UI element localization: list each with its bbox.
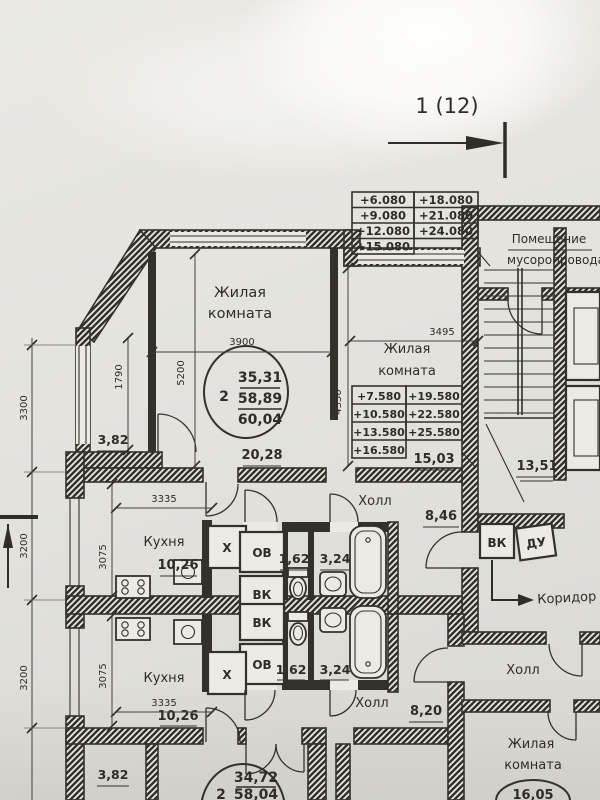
living1-name-line2: комната bbox=[208, 306, 272, 322]
living-right-name-line1: Жилая bbox=[508, 737, 555, 752]
dim-3335-top: 3335 bbox=[151, 494, 176, 505]
toilet-bottom bbox=[288, 612, 308, 645]
washbasin-top bbox=[320, 572, 346, 596]
living2-name-line1: Жилая bbox=[384, 342, 431, 357]
living2-area: 15,03 bbox=[413, 452, 454, 467]
hall-right-name: Холл bbox=[506, 663, 539, 678]
level-cell: +6.080 bbox=[360, 193, 406, 207]
wc-bottom-area: 1,62 bbox=[276, 662, 307, 677]
corridor-name: Коридор bbox=[537, 589, 597, 607]
level-cell: +22.580 bbox=[408, 408, 460, 421]
shaft-vk-top: ВК bbox=[253, 588, 272, 602]
apartment-living-area: 34,72 bbox=[234, 770, 278, 786]
living1-area: 20,28 bbox=[241, 448, 282, 463]
living1-name-line1: Жилая bbox=[214, 285, 266, 301]
dim-left-3300: 3300 bbox=[19, 395, 30, 420]
bath-bottom-area: 3,24 bbox=[320, 662, 351, 677]
level-cell: +10.580 bbox=[353, 408, 405, 421]
dim-5200: 5200 bbox=[176, 360, 187, 385]
apartment-reduced-area: 58,89 bbox=[238, 391, 282, 407]
kitchen-bottom-area: 10,26 bbox=[157, 709, 198, 724]
kitchen-top-area: 10,26 bbox=[157, 558, 198, 573]
kitchen-top-name: Кухня bbox=[144, 535, 185, 550]
dim-3075-bottom: 3075 bbox=[98, 663, 109, 688]
hall-bottom-area: 8,20 bbox=[410, 704, 442, 719]
hall-bottom-name: Холл bbox=[355, 696, 388, 711]
level-cell: +19.580 bbox=[408, 390, 460, 403]
level-cell: +24.080 bbox=[419, 224, 473, 238]
floor-plan-drawing: X ОВ ВК ВК ОВ X ВК ДУ bbox=[0, 0, 600, 800]
kitchen-bottom-name: Кухня bbox=[144, 671, 185, 686]
level-cell: +9.080 bbox=[360, 209, 406, 223]
wc-top-area: 1,62 bbox=[279, 551, 310, 566]
shaft-ov-top: ОВ bbox=[252, 546, 271, 560]
elevator-shafts bbox=[566, 292, 600, 470]
level-cell: +25.580 bbox=[408, 426, 460, 439]
shaft-x-top: X bbox=[222, 541, 232, 555]
washbasin-bottom bbox=[320, 608, 346, 632]
dim-left-3200: 3200 bbox=[19, 533, 30, 558]
level-cell: +7.580 bbox=[357, 390, 401, 403]
chute-room-line2: мусоропровода bbox=[507, 253, 600, 267]
section-marker-label: 1 (12) bbox=[415, 94, 478, 118]
dim-1790: 1790 bbox=[114, 364, 125, 389]
living2-name-line2: комната bbox=[378, 364, 436, 379]
dim-3900: 3900 bbox=[229, 337, 254, 348]
shaft-x-bottom: X bbox=[222, 668, 232, 682]
shaft-vk-stair: ВК bbox=[488, 536, 507, 550]
shaft-vk-bottom: ВК bbox=[253, 616, 272, 630]
stairs-area: 13,51 bbox=[516, 459, 557, 474]
dim-3495: 3495 bbox=[429, 327, 454, 338]
shaft-ov-bottom: ОВ bbox=[252, 658, 271, 672]
balcony-top-area: 3,82 bbox=[98, 432, 129, 447]
apartment-number: 2 bbox=[219, 389, 229, 405]
level-cell: +12.080 bbox=[356, 224, 410, 238]
level-cell: +21.080 bbox=[419, 209, 473, 223]
hall-top-name: Холл bbox=[358, 494, 391, 509]
stove-bottom bbox=[116, 618, 150, 640]
living-right-area: 16,05 bbox=[512, 788, 553, 800]
apartment-reduced-area: 58,04 bbox=[234, 787, 279, 800]
living-right-name-line2: комната bbox=[504, 758, 562, 773]
level-cell: +16.580 bbox=[353, 444, 405, 457]
shaft-du-stair: ДУ bbox=[525, 535, 547, 552]
stove-top bbox=[116, 576, 150, 598]
dim-3335-bottom: 3335 bbox=[151, 698, 176, 709]
level-cell: +18.080 bbox=[419, 193, 473, 207]
apartment-living-area: 35,31 bbox=[238, 370, 282, 386]
dim-left-3200b: 3200 bbox=[19, 665, 30, 690]
chute-room-line1: Помещение bbox=[512, 232, 587, 246]
bath-top-area: 3,24 bbox=[320, 551, 351, 566]
level-cell: +13.580 bbox=[353, 426, 405, 439]
apartment-number: 2 bbox=[216, 787, 226, 800]
floor-plan-photo: X ОВ ВК ВК ОВ X ВК ДУ bbox=[0, 0, 600, 800]
dim-4350: 4350 bbox=[333, 389, 344, 414]
dim-3075-top: 3075 bbox=[98, 544, 109, 569]
balcony-bottom-area: 3,82 bbox=[98, 767, 129, 782]
toilet-top bbox=[288, 568, 308, 599]
sink-bottom bbox=[174, 620, 202, 644]
level-cell: +15.080 bbox=[356, 240, 410, 254]
apartment-total-area: 60,04 bbox=[238, 412, 283, 428]
hall-top-area: 8,46 bbox=[425, 509, 457, 524]
